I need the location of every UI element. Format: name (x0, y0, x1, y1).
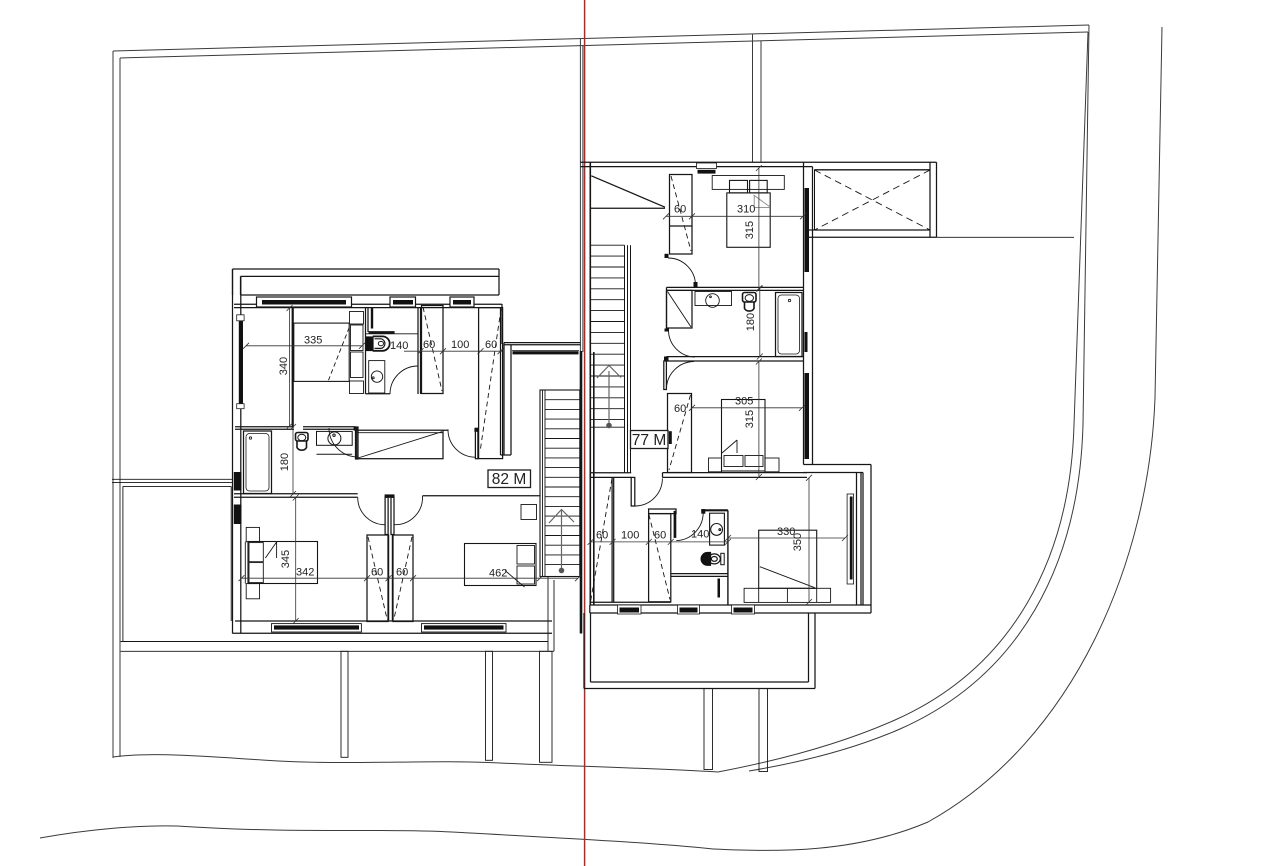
svg-text:60: 60 (596, 530, 608, 542)
svg-text:305: 305 (735, 396, 753, 408)
svg-text:462: 462 (489, 568, 507, 580)
svg-text:342: 342 (296, 567, 314, 579)
svg-text:310: 310 (737, 204, 755, 216)
svg-text:60: 60 (485, 339, 497, 351)
svg-text:180: 180 (745, 313, 757, 331)
svg-text:350: 350 (792, 533, 804, 551)
svg-text:60: 60 (423, 339, 435, 351)
svg-text:60: 60 (396, 567, 408, 579)
svg-text:315: 315 (744, 410, 756, 428)
svg-text:140: 140 (691, 529, 709, 541)
svg-text:82 M: 82 M (492, 471, 526, 488)
svg-text:60: 60 (674, 403, 686, 415)
svg-text:60: 60 (674, 204, 686, 216)
svg-text:335: 335 (304, 335, 322, 347)
svg-text:340: 340 (278, 357, 290, 375)
svg-text:77 M: 77 M (632, 432, 666, 449)
svg-text:315: 315 (744, 221, 756, 239)
svg-text:60: 60 (371, 567, 383, 579)
svg-text:180: 180 (279, 453, 291, 471)
svg-text:100: 100 (451, 339, 469, 351)
svg-text:100: 100 (621, 530, 639, 542)
svg-text:60: 60 (654, 530, 666, 542)
svg-text:140: 140 (390, 340, 408, 352)
svg-text:345: 345 (280, 550, 292, 568)
